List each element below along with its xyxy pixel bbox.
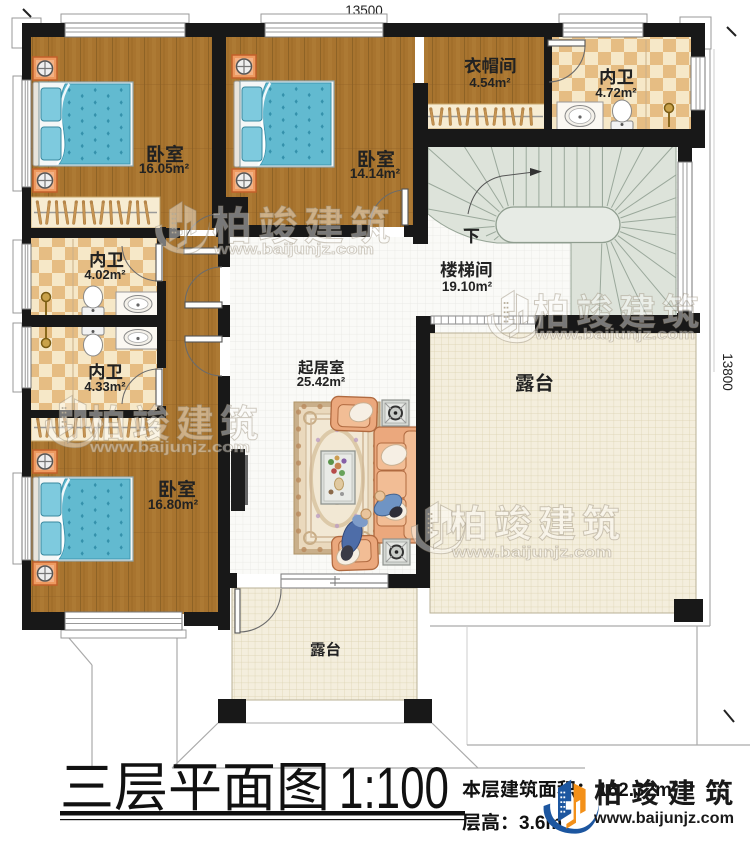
svg-text:4.72m²: 4.72m² [595,85,637,100]
svg-text:www.baijunjz.com: www.baijunjz.com [89,439,250,456]
svg-text:19.10m²: 19.10m² [442,279,493,294]
svg-text:13800: 13800 [720,353,735,391]
svg-text:4.02m²: 4.02m² [84,267,126,282]
svg-text:4.33m²: 4.33m² [84,379,126,394]
svg-text:www.baijunjz.com: www.baijunjz.com [593,810,734,827]
svg-text:www.baijunjz.com: www.baijunjz.com [534,326,695,343]
svg-text:www.baijunjz.com: www.baijunjz.com [213,241,374,258]
svg-text:16.05m²: 16.05m² [139,161,190,176]
svg-text:4.54m²: 4.54m² [469,75,511,90]
svg-text:www.baijunjz.com: www.baijunjz.com [451,544,612,561]
svg-text:25.42m²: 25.42m² [297,374,346,389]
svg-text:16.80m²: 16.80m² [148,497,199,512]
svg-text:14.14m²: 14.14m² [350,166,401,181]
